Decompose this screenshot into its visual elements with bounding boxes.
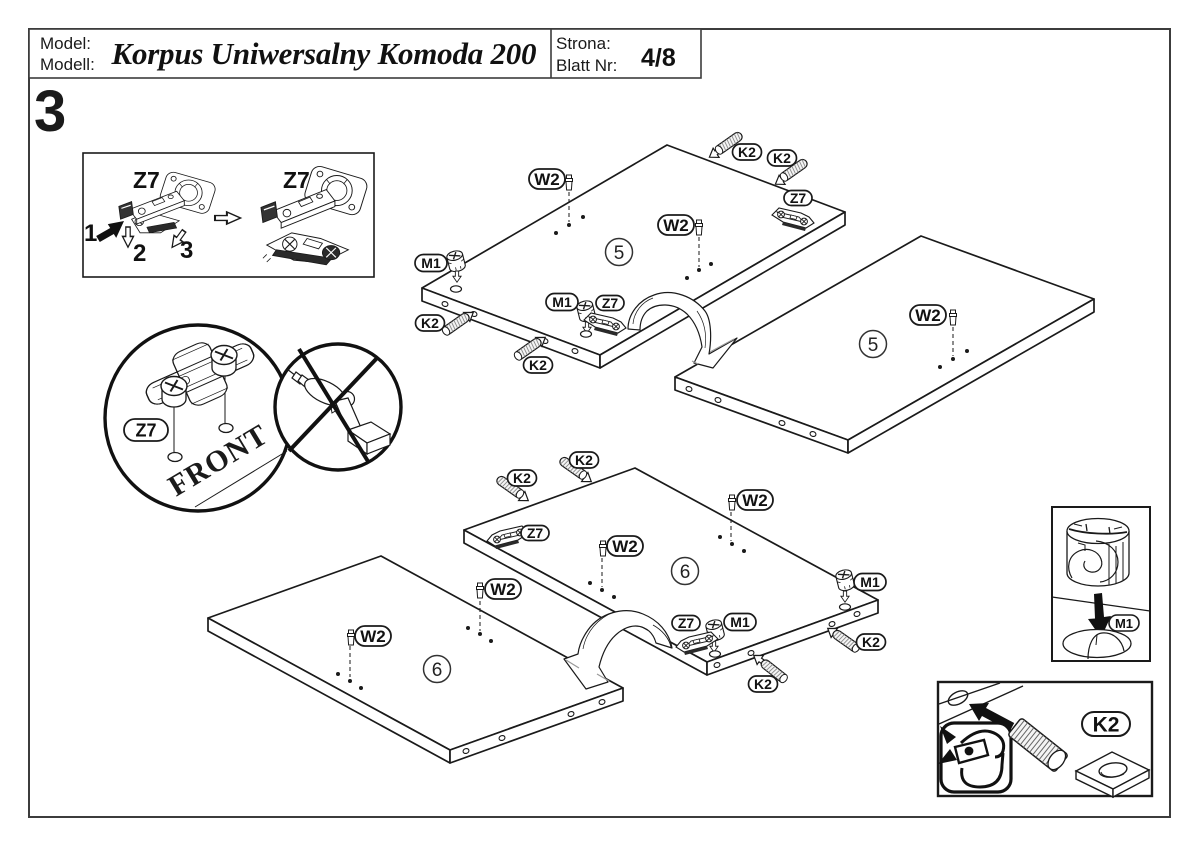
svg-text:W2: W2 xyxy=(490,580,516,599)
svg-text:Korpus Uniwersalny Komoda 200: Korpus Uniwersalny Komoda 200 xyxy=(111,36,537,71)
svg-text:K2: K2 xyxy=(773,150,791,166)
svg-text:K2: K2 xyxy=(529,357,547,373)
svg-text:Z7: Z7 xyxy=(133,167,160,193)
svg-text:Model:: Model: xyxy=(40,34,91,53)
svg-text:K2: K2 xyxy=(1093,714,1120,737)
svg-text:2: 2 xyxy=(133,240,146,267)
svg-text:K2: K2 xyxy=(575,452,593,468)
svg-text:M1: M1 xyxy=(860,574,880,590)
svg-text:Z7: Z7 xyxy=(678,615,695,631)
svg-text:W2: W2 xyxy=(534,170,560,189)
svg-text:5: 5 xyxy=(614,243,625,264)
svg-text:K2: K2 xyxy=(513,470,531,486)
svg-text:1: 1 xyxy=(84,220,97,247)
svg-text:Strona:: Strona: xyxy=(556,34,611,53)
svg-text:M1: M1 xyxy=(1115,616,1133,631)
svg-text:Z7: Z7 xyxy=(602,295,619,311)
svg-text:M1: M1 xyxy=(421,255,441,271)
svg-text:K2: K2 xyxy=(421,315,439,331)
svg-text:W2: W2 xyxy=(915,306,941,325)
svg-text:4/8: 4/8 xyxy=(641,44,676,72)
svg-text:W2: W2 xyxy=(360,627,386,646)
svg-text:K2: K2 xyxy=(862,634,880,650)
svg-text:5: 5 xyxy=(868,335,879,356)
svg-text:Z7: Z7 xyxy=(790,190,807,206)
svg-text:6: 6 xyxy=(680,562,691,583)
svg-text:Z7: Z7 xyxy=(135,421,156,441)
svg-text:M1: M1 xyxy=(730,614,750,630)
svg-text:3: 3 xyxy=(34,79,66,144)
svg-text:W2: W2 xyxy=(742,491,768,510)
svg-text:Modell:: Modell: xyxy=(40,55,95,74)
svg-text:Blatt Nr:: Blatt Nr: xyxy=(556,56,617,75)
svg-text:W2: W2 xyxy=(663,216,689,235)
svg-text:Z7: Z7 xyxy=(527,525,544,541)
svg-text:K2: K2 xyxy=(738,144,756,160)
svg-text:W2: W2 xyxy=(612,537,638,556)
svg-text:M1: M1 xyxy=(552,294,572,310)
svg-text:K2: K2 xyxy=(754,676,772,692)
svg-text:6: 6 xyxy=(432,660,443,681)
